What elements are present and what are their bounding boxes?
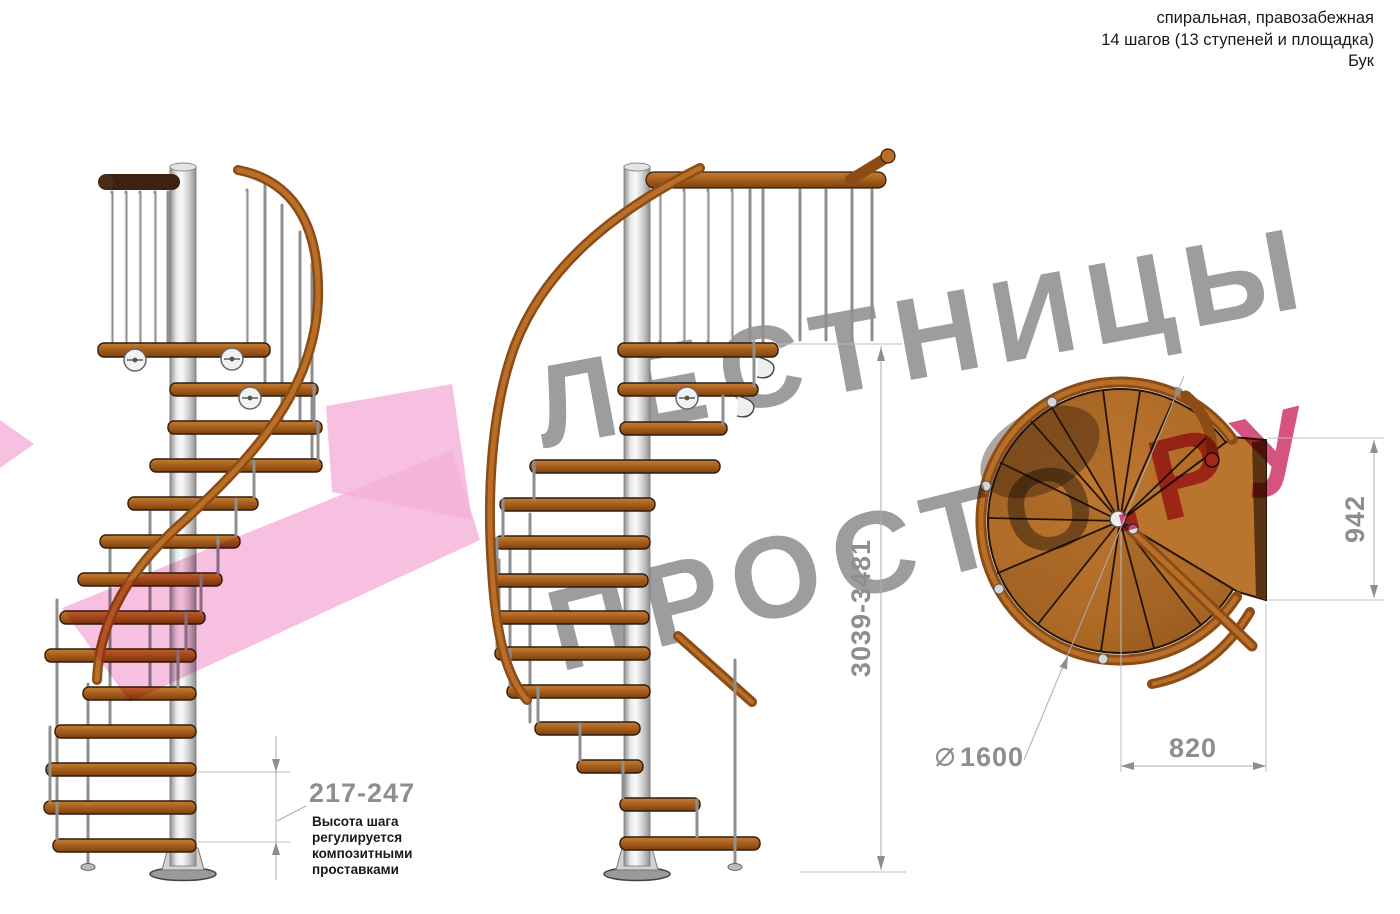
handrail-end-cap-icon [881,149,895,163]
tread [55,725,196,738]
title-type: спиральная, правозабежная [1101,8,1374,30]
baluster-foot [728,864,742,871]
tread [46,763,196,776]
staircase-drawing: ЛЕСТНИЦЫ ПРОСТО.РУ [0,0,1400,914]
tread [53,839,196,852]
tread [620,837,760,850]
title-steps: 14 шагов (13 ступеней и площадка) [1101,30,1374,52]
tread [620,798,700,811]
tread [620,422,727,435]
connector-discs [676,387,698,409]
tread [577,760,643,773]
landing-depth-value: 942 [1340,495,1370,543]
step-height-note-3: композитными [312,846,412,861]
step-height-value: 217-247 [309,778,415,808]
tread [44,801,196,814]
tread [494,611,649,624]
handrail-end-cap-icon [98,174,114,190]
tread [495,647,650,660]
tread [493,574,648,587]
tread [530,460,720,473]
step-height-note-1: Высота шага [312,814,399,829]
step-height-note-4: проставками [312,862,399,877]
drawing-canvas: ЛЕСТНИЦЫ ПРОСТО.РУ [0,0,1400,914]
tread [98,343,270,357]
title-material: Бук [1101,51,1374,73]
column-cap [170,163,196,171]
tread [535,722,640,735]
tread [500,498,655,511]
title-block: спиральная, правозабежная 14 шагов (13 с… [1101,8,1374,73]
tread [168,421,322,434]
diameter-value: 1600 [960,742,1024,772]
tread [495,536,650,549]
step-height-note-2: регулируется [312,830,402,845]
landing-width-value: 820 [1169,733,1217,763]
total-height-value: 3039-3481 [846,539,876,677]
column-cap [624,163,650,171]
